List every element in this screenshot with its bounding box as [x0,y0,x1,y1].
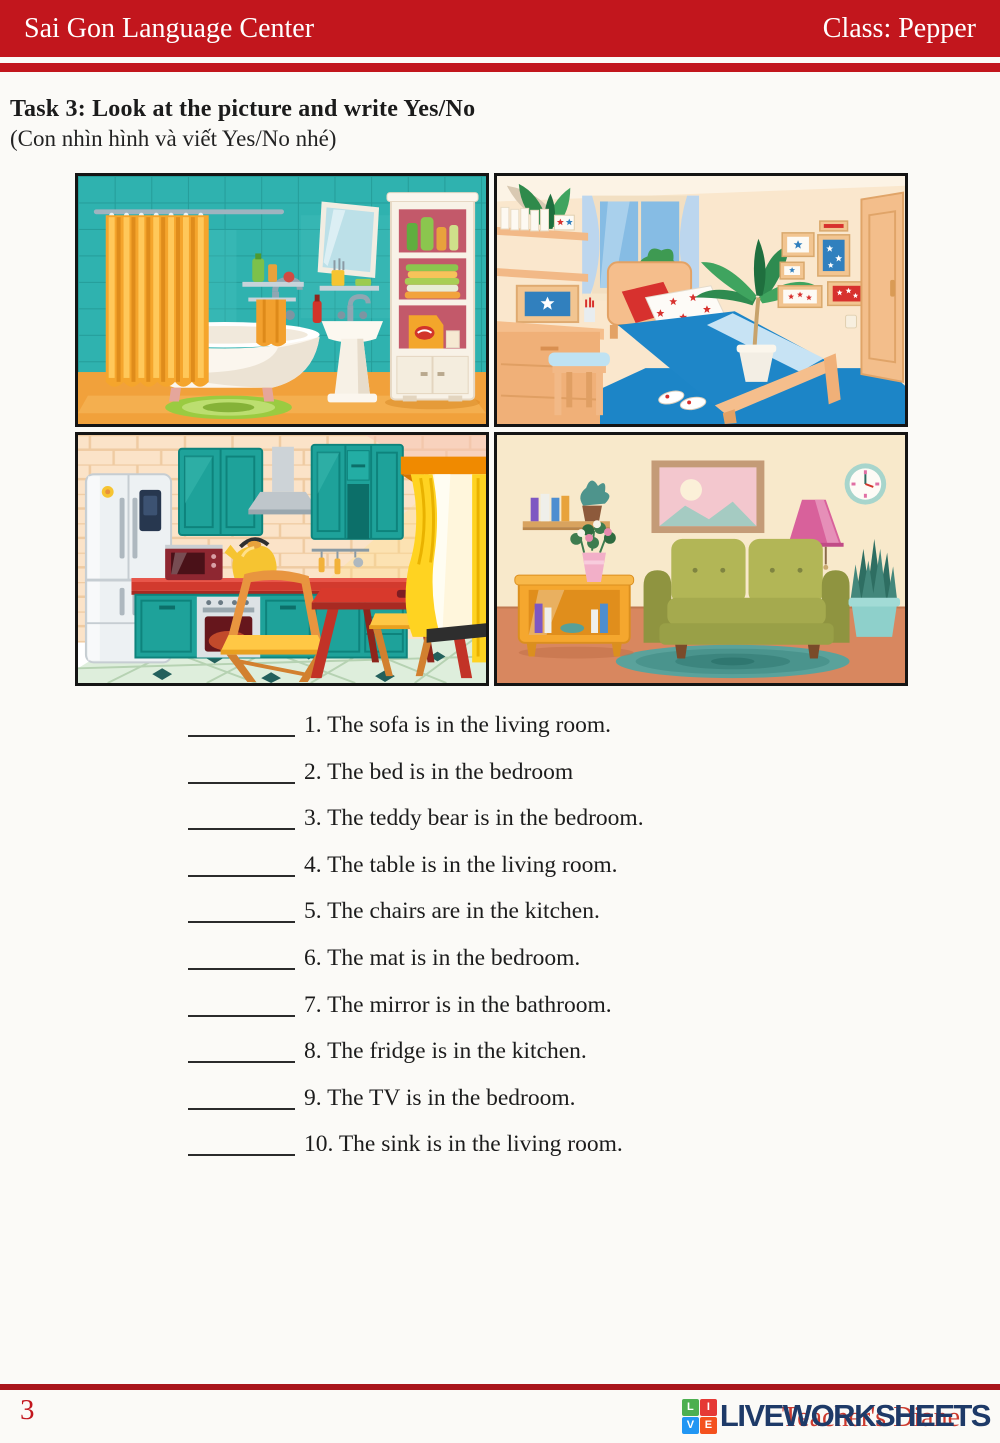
picture-kitchen [75,432,489,686]
question-row: 10. The sink is in the living room. [188,1131,644,1178]
question-text: 6. The mat is in the bedroom. [304,945,580,972]
picture-living-room [494,432,908,686]
question-text: 8. The fridge is in the kitchen. [304,1038,587,1065]
logo-block-i: I [700,1399,717,1416]
answer-blank[interactable] [188,898,295,923]
task-title: Task 3: Look at the picture and write Ye… [10,96,475,123]
question-row: 6. The mat is in the bedroom. [188,945,644,992]
question-row: 1. The sofa is in the living room. [188,712,644,759]
question-text: 4. The table is in the living room. [304,852,618,879]
task-subtitle: (Con nhìn hình và viết Yes/No nhé) [10,126,475,152]
question-text: 7. The mirror is in the bathroom. [304,992,612,1019]
logo-block-v: V [682,1417,699,1434]
answer-blank[interactable] [188,1131,295,1156]
question-row: 7. The mirror is in the bathroom. [188,992,644,1039]
question-row: 9. The TV is in the bedroom. [188,1085,644,1132]
picture-bedroom [494,173,908,427]
answer-blank[interactable] [188,992,295,1017]
questions-list: 1. The sofa is in the living room. 2. Th… [188,712,644,1178]
question-text: 1. The sofa is in the living room. [304,712,611,739]
answer-blank[interactable] [188,712,295,737]
logo-block-e: E [700,1417,717,1434]
school-name: Sai Gon Language Center [24,13,314,45]
question-text: 5. The chairs are in the kitchen. [304,898,600,925]
living-room-illustration [497,435,905,683]
task-block: Task 3: Look at the picture and write Ye… [10,96,475,152]
answer-blank[interactable] [188,945,295,970]
answer-blank[interactable] [188,759,295,784]
bedroom-illustration [497,176,905,424]
kitchen-illustration [78,435,486,683]
picture-bathroom [75,173,489,427]
question-text: 9. The TV is in the bedroom. [304,1085,576,1112]
bathroom-illustration [78,176,486,424]
class-label: Class: Pepper [823,13,976,45]
question-text: 2. The bed is in the bedroom [304,759,573,786]
answer-blank[interactable] [188,1038,295,1063]
question-text: 10. The sink is in the living room. [304,1131,623,1158]
liveworksheets-icon: L I V E [682,1399,717,1434]
answer-blank[interactable] [188,805,295,830]
logo-wordmark: LIVEWORKSHEETS [720,1398,990,1434]
picture-grid [75,173,908,686]
header-stripe [0,63,1000,72]
question-row: 2. The bed is in the bedroom [188,759,644,806]
question-row: 4. The table is in the living room. [188,852,644,899]
question-text: 3. The teddy bear is in the bedroom. [304,805,644,832]
header-bar: Sai Gon Language Center Class: Pepper [0,0,1000,57]
question-row: 8. The fridge is in the kitchen. [188,1038,644,1085]
footer-divider [0,1384,1000,1390]
question-row: 3. The teddy bear is in the bedroom. [188,805,644,852]
question-row: 5. The chairs are in the kitchen. [188,898,644,945]
logo-block-l: L [682,1399,699,1416]
page-number: 3 [20,1394,35,1427]
answer-blank[interactable] [188,852,295,877]
liveworksheets-logo[interactable]: L I V E LIVEWORKSHEETS [682,1398,990,1434]
answer-blank[interactable] [188,1085,295,1110]
